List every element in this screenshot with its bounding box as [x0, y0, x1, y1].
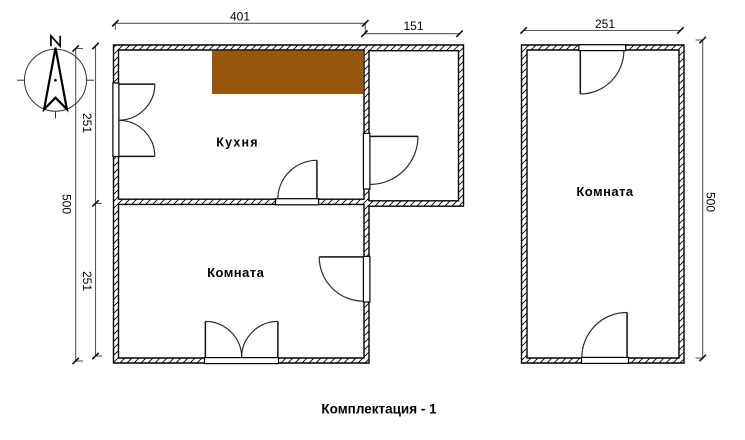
- svg-text:151: 151: [403, 19, 423, 33]
- svg-text:251: 251: [595, 17, 615, 31]
- svg-text:Комната: Комната: [576, 184, 633, 199]
- svg-text:251: 251: [80, 271, 94, 291]
- svg-text:Комната: Комната: [207, 265, 264, 280]
- svg-text:500: 500: [60, 194, 74, 214]
- svg-text:500: 500: [704, 192, 718, 212]
- svg-text:Комплектация - 1: Комплектация - 1: [321, 401, 437, 416]
- svg-text:251: 251: [80, 113, 94, 133]
- svg-text:401: 401: [230, 10, 250, 24]
- svg-text:Кухня: Кухня: [216, 136, 259, 150]
